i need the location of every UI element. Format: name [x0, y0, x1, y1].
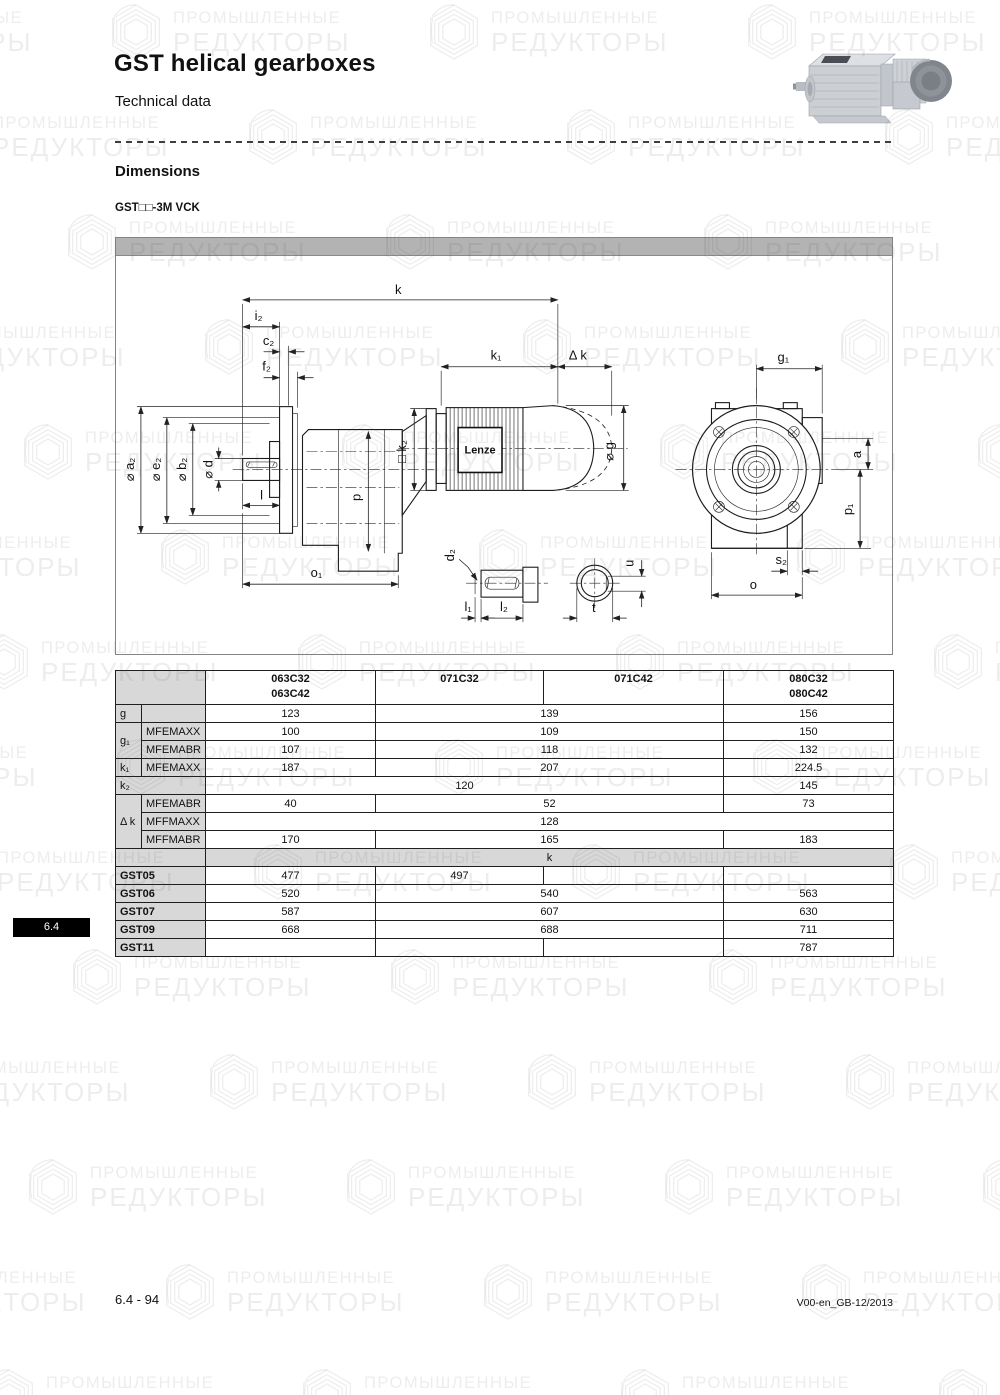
cell-value: 123: [206, 705, 376, 723]
watermark-tile: ПРОМЫШЛЕННЫЕРЕДУКТОРЫ: [842, 1052, 1000, 1112]
watermark-tile: ПРОМЫШЛЕННЫЕРЕДУКТОРЫ: [0, 107, 170, 167]
watermark-hex-logo: [524, 1052, 580, 1112]
watermark-hex-logo: [798, 1262, 854, 1322]
table-row-gst09: GST09 668 688 711: [116, 921, 894, 939]
watermark-tile: ПРОМЫШЛЕННЫЕРЕДУКТОРЫ: [299, 1367, 542, 1395]
watermark-hex-logo: [0, 632, 32, 692]
cell-value: 107: [206, 741, 376, 759]
watermark-hex-logo: [661, 1157, 717, 1217]
watermark-hex-logo: [206, 1052, 262, 1112]
row-sublabel: MFEMABR: [142, 795, 206, 813]
cell-value: [724, 867, 894, 885]
table-row-dk-mfemabr: Δ k MFEMABR 40 52 73: [116, 795, 894, 813]
band-label-cell: [116, 849, 206, 867]
watermark-tile: ПРОМЫШЛЕННЫЕРЕДУКТОРЫ: [206, 1052, 449, 1112]
watermark-hex-logo: [64, 212, 120, 272]
watermark-hex-logo: [886, 842, 942, 902]
side-view-dimensions: k i₂ c₂ f₂ k₁: [122, 282, 629, 588]
dim-label-d2: d₂: [442, 549, 457, 561]
cell-value: 207: [376, 759, 724, 777]
section-heading: Dimensions: [115, 163, 200, 180]
watermark-hex-logo: [245, 107, 301, 167]
catalog-page: GST helical gearboxes Technical data Dim…: [0, 0, 1000, 1395]
shaft-detail: d₂ l₁ l₂: [442, 549, 548, 622]
motor-brand-label: Lenze: [465, 445, 496, 457]
watermark-hex-logo: [343, 1157, 399, 1217]
row-sublabel: MFFMAXX: [142, 813, 206, 831]
cell-value: [544, 867, 724, 885]
cell-value: 40: [206, 795, 376, 813]
watermark-hex-logo: [617, 1367, 673, 1395]
watermark-tile: ПРОМЫШЛЕННЫЕРЕДУКТОРЫ: [563, 107, 806, 167]
cell-value: [206, 939, 376, 957]
col-header-080: 080C32 080C42: [724, 671, 894, 705]
table-row-gst11: GST11 787: [116, 939, 894, 957]
dim-label-p: p: [348, 494, 363, 501]
drawing-frame: Lenze k i₂ c₂: [115, 237, 893, 655]
watermark-tile: ПРОМЫШЛЕННЫЕРЕДУКТОРЫ: [617, 1367, 860, 1395]
row-label: GST09: [116, 921, 206, 939]
watermark-tile: ПРОМЫШЛЕННЫЕРЕДУКТОРЫ: [426, 2, 669, 62]
dashed-divider: [115, 141, 893, 143]
watermark-hex-logo: [162, 1262, 218, 1322]
watermark-tile: ПРОМЫШЛЕННЫЕРЕДУКТОРЫ: [0, 1367, 224, 1395]
row-label: g: [116, 705, 142, 723]
dim-label-f2: f₂: [262, 359, 271, 374]
watermark-hex-logo: [299, 1367, 355, 1395]
cell-value: 100: [206, 723, 376, 741]
dim-label-phi-d: ⌀ d: [201, 460, 216, 479]
watermark-tile: ПРОМЫШЛЕННЫЕРЕДУКТОРЫ: [0, 2, 33, 62]
col-header-line: 080C42: [726, 687, 891, 702]
header-corner-cell: [116, 671, 206, 705]
cell-value: 128: [206, 813, 894, 831]
watermark-hex-logo: [0, 1367, 37, 1395]
cell-value: 540: [376, 885, 724, 903]
watermark-tile: ПРОМЫШЛЕННЫЕРЕДУКТОРЫ: [343, 1157, 586, 1217]
watermark-tile: ПРОМЫШЛЕННЫЕРЕДУКТОРЫ: [0, 317, 126, 377]
drawing-frame-header: [116, 238, 892, 256]
cell-value: 711: [724, 921, 894, 939]
cell-value: 145: [724, 777, 894, 795]
page-number: 6.4 - 94: [115, 1292, 159, 1307]
side-view: Lenze: [233, 406, 628, 572]
dim-label-a: a: [849, 450, 864, 458]
dim-label-phi-g: ⌀ g: [602, 442, 617, 461]
cell-value: 630: [724, 903, 894, 921]
cell-value: 183: [724, 831, 894, 849]
cell-value: 563: [724, 885, 894, 903]
table-row-gst07: GST07 587 607 630: [116, 903, 894, 921]
cell-value: 607: [376, 903, 724, 921]
watermark-hex-logo: [930, 632, 986, 692]
cell-value: 170: [206, 831, 376, 849]
row-label: GST06: [116, 885, 206, 903]
cell-value: 150: [724, 723, 894, 741]
watermark-tile: ПРОМЫШЛЕННЫЕРЕДУКТОРЫ: [935, 1367, 1000, 1395]
watermark-tile: ПРОМЫШЛЕННЫЕРЕДУКТОРЫ: [0, 1262, 87, 1322]
cell-value: 668: [206, 921, 376, 939]
table-row-k1: k₁ MFEMAXX 187 207 224.5: [116, 759, 894, 777]
watermark-tile: ПРОМЫШЛЕННЫЕРЕДУКТОРЫ: [0, 737, 38, 797]
watermark-tile: ПРОМЫШЛЕННЫЕРЕДУКТОРЫ: [886, 842, 1000, 902]
watermark-tile: ПРОМЫШЛЕННЫЕРЕДУКТОРЫ: [25, 1157, 268, 1217]
dim-label-square-k2: □ k₂: [394, 440, 409, 463]
cell-value: 787: [724, 939, 894, 957]
cell-value: 224.5: [724, 759, 894, 777]
row-label: GST07: [116, 903, 206, 921]
cell-value: 73: [724, 795, 894, 813]
watermark-hex-logo: [426, 2, 482, 62]
table-row-g: g 123 139 156: [116, 705, 894, 723]
table-row-k2: k₂ 120 145: [116, 777, 894, 795]
table-row-g1-mfemabr: MFEMABR 107 118 132: [116, 741, 894, 759]
dim-label-u: u: [622, 560, 637, 567]
watermark-tile: ПРОМЫШЛЕННЫЕРЕДУКТОРЫ: [661, 1157, 904, 1217]
cell-value: [376, 939, 544, 957]
dimensions-table: 063C32 063C42 071C32 071C42 080C32 080C4…: [115, 670, 894, 957]
watermark-tile: ПРОМЫШЛЕННЫЕРЕДУКТОРЫ: [974, 422, 1000, 482]
row-label: GST05: [116, 867, 206, 885]
table-row-gst06: GST06 520 540 563: [116, 885, 894, 903]
page-subtitle: Technical data: [115, 93, 211, 110]
dim-label-phi-a2: ⌀ a₂: [122, 458, 137, 482]
watermark-tile: ПРОМЫШЛЕННЫЕРЕДУКТОРЫ: [245, 107, 488, 167]
front-view: g₁ a p₁ s₂ o: [676, 350, 874, 599]
col-header-071c32: 071C32: [376, 671, 544, 705]
dim-label-l2: l₂: [500, 599, 508, 614]
cell-value: 520: [206, 885, 376, 903]
gearmotor-photo-illustration: [793, 42, 958, 130]
dim-label-s2: s₂: [776, 552, 788, 567]
dim-label-phi-e2: ⌀ e₂: [148, 458, 163, 482]
dim-label-c2: c₂: [263, 333, 275, 348]
chapter-tab: 6.4: [13, 918, 90, 937]
row-label: Δ k: [116, 795, 142, 849]
watermark-hex-logo: [935, 1367, 991, 1395]
cell-value: [544, 939, 724, 957]
watermark-hex-logo: [20, 422, 76, 482]
watermark-hex-logo: [744, 2, 800, 62]
watermark-tile: ПРОМЫШЛЕННЫЕРЕДУКТОРЫ: [162, 1262, 405, 1322]
watermark-tile: ПРОМЫШЛЕННЫЕРЕДУКТОРЫ: [480, 1262, 723, 1322]
page-title: GST helical gearboxes: [114, 50, 376, 78]
watermark-hex-logo: [563, 107, 619, 167]
dim-label-t: t: [592, 600, 596, 615]
dim-label-k1: k₁: [491, 348, 502, 363]
col-header-071c42: 071C42: [544, 671, 724, 705]
cell-value: 688: [376, 921, 724, 939]
cell-value: 165: [376, 831, 724, 849]
col-header-line: 063C42: [208, 687, 373, 702]
dim-label-delta-k: Δ k: [569, 348, 588, 363]
row-sublabel: MFFMABR: [142, 831, 206, 849]
col-header-line: 080C32: [726, 672, 891, 687]
watermark-tile: ПРОМЫШЛЕННЫЕРЕДУКТОРЫ: [0, 1052, 131, 1112]
dim-label-l1: l₁: [464, 599, 472, 614]
watermark-tile: ПРОМЫШЛЕННЫЕРЕДУКТОРЫ: [979, 1157, 1000, 1217]
watermark-hex-logo: [979, 1157, 1000, 1217]
watermark-tile: ПРОМЫШЛЕННЫЕРЕДУКТОРЫ: [930, 632, 1000, 692]
cell-value: 120: [206, 777, 724, 795]
cell-value: 587: [206, 903, 376, 921]
variant-label: GST□□-3M VCK: [115, 202, 200, 214]
row-sublabel: [142, 705, 206, 723]
cell-value: 52: [376, 795, 724, 813]
cell-value: 187: [206, 759, 376, 777]
watermark-hex-logo: [842, 1052, 898, 1112]
dim-label-l: l: [260, 487, 263, 502]
table-row-dk-mffmabr: MFFMABR 170 165 183: [116, 831, 894, 849]
watermark-hex-logo: [974, 422, 1000, 482]
table-header-row: 063C32 063C42 071C32 071C42 080C32 080C4…: [116, 671, 894, 705]
row-label: GST11: [116, 939, 206, 957]
watermark-tile: ПРОМЫШЛЕННЫЕРЕДУКТОРЫ: [0, 527, 82, 587]
watermark-tile: ПРОМЫШЛЕННЫЕРЕДУКТОРЫ: [524, 1052, 767, 1112]
col-header-line: 063C32: [208, 672, 373, 687]
dim-label-o: o: [750, 577, 757, 592]
table-row-k-band: k: [116, 849, 894, 867]
dim-label-i2: i₂: [255, 308, 263, 323]
table-row-dk-mffmaxx: MFFMAXX 128: [116, 813, 894, 831]
dim-label-k: k: [395, 282, 402, 297]
cell-value: 132: [724, 741, 894, 759]
band-title: k: [206, 849, 894, 867]
dim-label-phi-b2: ⌀ b₂: [174, 458, 189, 482]
col-header-063: 063C32 063C42: [206, 671, 376, 705]
table-row-g1-mfemaxx: g₁ MFEMAXX 100 109 150: [116, 723, 894, 741]
cell-value: 139: [376, 705, 724, 723]
cell-value: 477: [206, 867, 376, 885]
dim-label-g1: g₁: [778, 350, 790, 365]
watermark-hex-logo: [480, 1262, 536, 1322]
watermark-tile: ПРОМЫШЛЕННЫЕРЕДУКТОРЫ: [798, 1262, 1000, 1322]
table-row-gst05: GST05 477 497: [116, 867, 894, 885]
document-version: V00-en_GB-12/2013: [713, 1297, 893, 1309]
technical-drawing: Lenze k i₂ c₂: [116, 256, 892, 655]
row-label: k₂: [116, 777, 206, 795]
row-sublabel: MFEMABR: [142, 741, 206, 759]
row-label: g₁: [116, 723, 142, 759]
row-sublabel: MFEMAXX: [142, 723, 206, 741]
row-label: k₁: [116, 759, 142, 777]
cell-value: 118: [376, 741, 724, 759]
cell-value: 109: [376, 723, 724, 741]
cell-value: 497: [376, 867, 544, 885]
dim-label-p1: p₁: [840, 503, 855, 515]
cell-value: 156: [724, 705, 894, 723]
watermark-hex-logo: [25, 1157, 81, 1217]
row-sublabel: MFEMAXX: [142, 759, 206, 777]
dim-label-o1: o₁: [311, 565, 323, 580]
shaft-cross-section: u t: [563, 558, 646, 622]
product-photo: [793, 42, 958, 130]
